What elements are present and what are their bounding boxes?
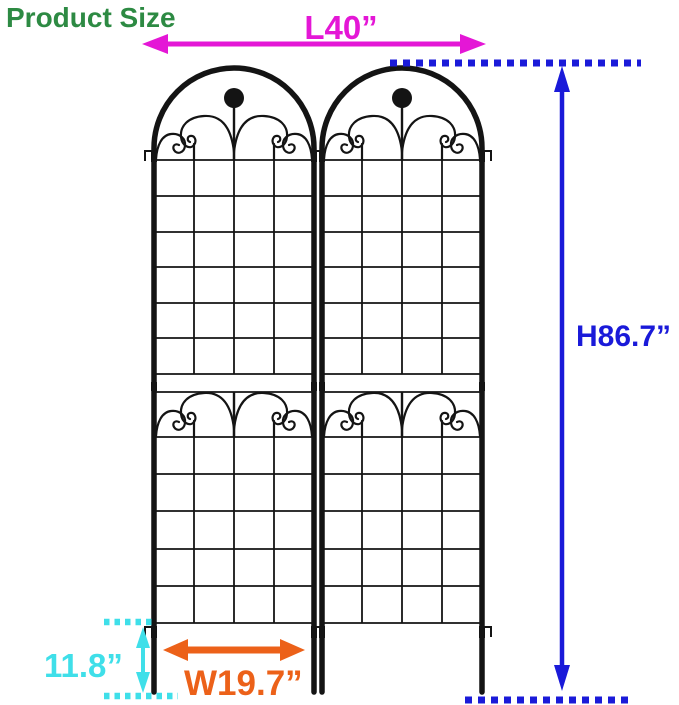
height-dimension: H86.7” (390, 63, 671, 700)
diagram-canvas: Product Size L40” H86.7” (0, 0, 679, 705)
length-arrowhead-left (142, 34, 168, 54)
length-dimension: L40” (142, 9, 486, 54)
stake-arrowhead-top (136, 627, 150, 648)
width-label: W19.7” (184, 664, 303, 703)
width-dimension: W19.7” (163, 639, 305, 703)
stake-arrowhead-bottom (136, 672, 150, 693)
length-label: L40” (304, 9, 377, 46)
height-arrowhead-bottom (554, 665, 570, 691)
height-arrowhead-top (554, 66, 570, 92)
width-arrowhead-left (163, 639, 188, 661)
width-arrowhead-right (280, 639, 305, 661)
trellis-panel-left (145, 68, 323, 692)
trellis-panels (145, 68, 491, 692)
length-arrowhead-right (460, 34, 486, 54)
stake-depth-dimension: 11.8” (44, 622, 178, 696)
product-size-diagram: Product Size L40” H86.7” (0, 0, 679, 705)
height-label: H86.7” (576, 320, 671, 353)
trellis-panel-right (313, 68, 491, 692)
stake-depth-label: 11.8” (44, 647, 123, 684)
page-title: Product Size (6, 2, 176, 33)
